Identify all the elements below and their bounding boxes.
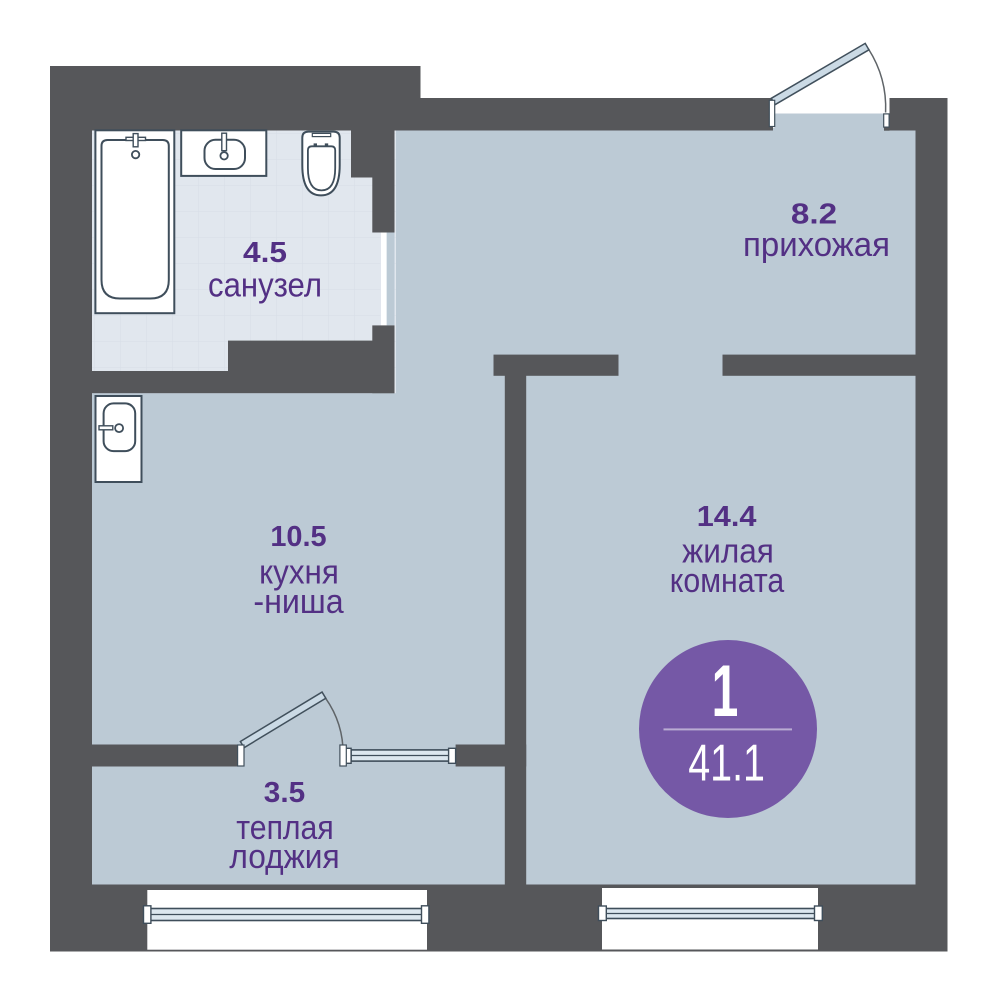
svg-text:4.5: 4.5 (243, 237, 287, 269)
svg-text:3.5: 3.5 (264, 777, 305, 809)
svg-text:лоджия: лоджия (229, 838, 339, 876)
svg-text:10.5: 10.5 (270, 521, 326, 553)
svg-text:1: 1 (712, 651, 739, 732)
svg-text:-ниша: -ниша (253, 583, 343, 621)
svg-text:комната: комната (670, 562, 784, 600)
svg-text:прихожая: прихожая (743, 226, 890, 264)
svg-text:14.4: 14.4 (697, 501, 757, 533)
svg-text:41.1: 41.1 (688, 735, 765, 793)
svg-text:санузел: санузел (208, 267, 322, 305)
